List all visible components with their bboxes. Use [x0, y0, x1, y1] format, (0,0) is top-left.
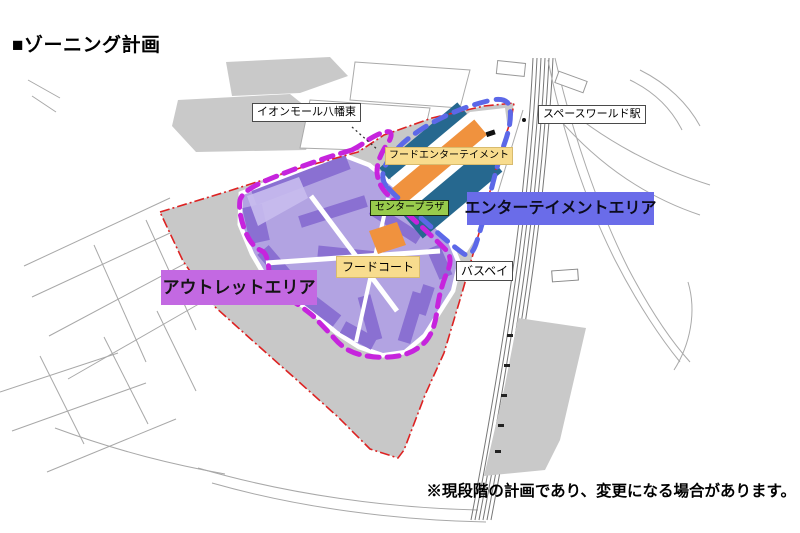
page-title: ■ゾーニング計画	[12, 30, 160, 57]
crossing-mark	[522, 118, 526, 122]
label-food-court: フードコート	[336, 256, 420, 278]
platform-block	[552, 269, 579, 282]
footnote: ※現段階の計画であり、変更になる場合があります。	[426, 479, 796, 501]
label-entertainment-area: エンターテイメントエリア	[467, 192, 654, 225]
station-block	[496, 61, 525, 77]
zoning-plan-page: ■ゾーニング計画 イオンモール八幡東 スペースワールド駅 フードエンターテイメン…	[0, 0, 800, 533]
label-outlet-area: アウトレットエリア	[161, 270, 317, 305]
label-space-world-station: スペースワールド駅	[538, 105, 646, 124]
label-aeon-mall: イオンモール八幡東	[252, 103, 361, 122]
label-food-entertainment: フードエンターテイメント	[385, 147, 513, 165]
station-block	[555, 71, 587, 93]
label-bus-bay: バスベイ	[456, 261, 513, 281]
label-center-plaza: センタープラザ	[370, 200, 449, 216]
